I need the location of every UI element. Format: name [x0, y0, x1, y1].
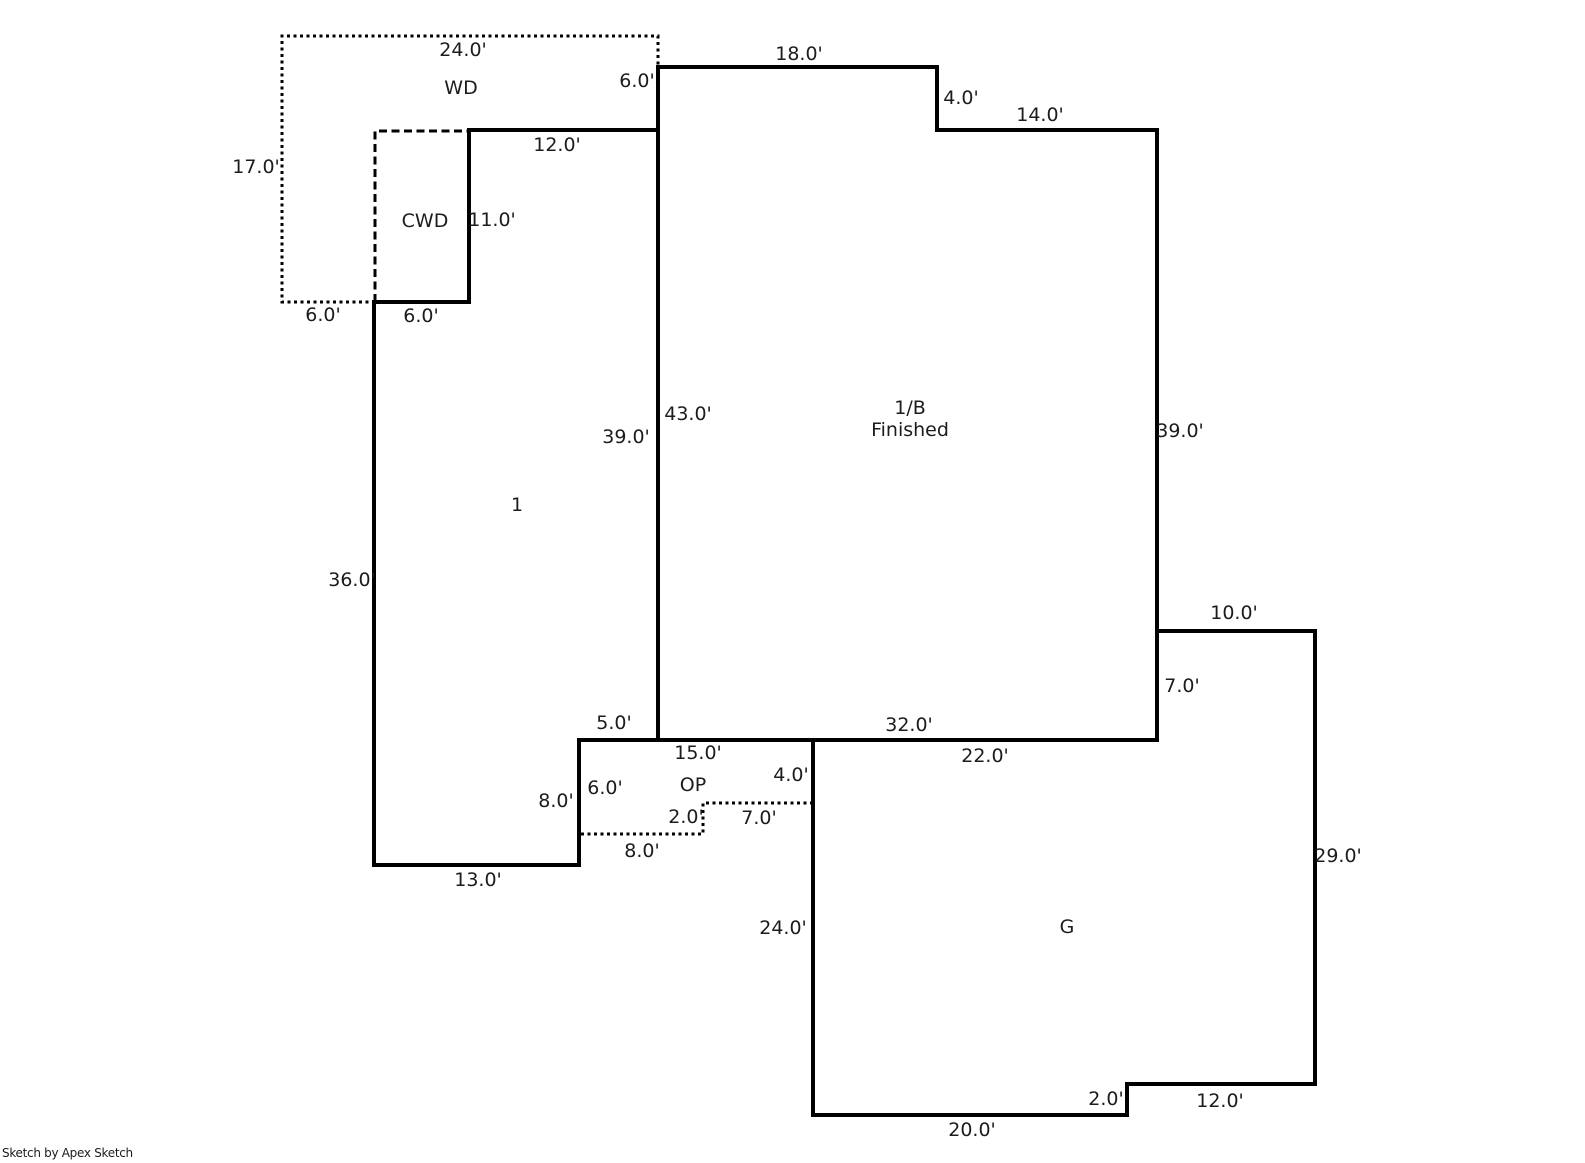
- floor-plan-page: 24.0' WD 17.0' 6.0' 6.0' CWD 11.0' 6.0' …: [0, 0, 1585, 1163]
- dim-op-inner-height: 2.0': [668, 806, 703, 828]
- area-label-op: OP: [680, 774, 706, 796]
- dim-bsmt-top-step: 4.0': [943, 87, 978, 109]
- dim-first-right: 39.0': [602, 426, 650, 448]
- dim-bsmt-right: 39.0': [1156, 420, 1204, 442]
- dim-g-bottom-right: 12.0': [1196, 1090, 1244, 1112]
- dim-wd-left: 17.0': [232, 156, 280, 178]
- dim-g-bottom-step: 2.0': [1088, 1088, 1123, 1110]
- dim-g-shared-wall: 7.0': [1164, 675, 1199, 697]
- garage-outline: [813, 631, 1315, 1115]
- dim-cwd-right: 11.0': [468, 209, 516, 231]
- area-label-1: 1: [511, 494, 523, 516]
- dim-first-left: 36.0': [328, 569, 376, 591]
- dim-bsmt-left: 43.0': [664, 403, 712, 425]
- dim-first-top: 12.0': [533, 134, 581, 156]
- sketch-credit: Sketch by Apex Sketch: [2, 1146, 133, 1160]
- area-label-wd: WD: [444, 77, 477, 99]
- dim-g-attach-bottom: 22.0': [961, 745, 1009, 767]
- dim-op-top: 15.0': [674, 742, 722, 764]
- dim-op-right: 4.0': [773, 764, 808, 786]
- area-label-1b-line2: Finished: [871, 419, 949, 441]
- dim-first-bottom-step: 5.0': [596, 712, 631, 734]
- dim-g-right: 29.0': [1314, 845, 1362, 867]
- dim-bsmt-top-left: 18.0': [775, 43, 823, 65]
- dim-first-lower-right: 8.0': [538, 790, 573, 812]
- area-label-g: G: [1060, 916, 1075, 938]
- dim-bsmt-bottom: 32.0': [885, 714, 933, 736]
- dim-g-left: 24.0': [759, 917, 807, 939]
- area-label-1b-line1: 1/B: [871, 397, 949, 419]
- dim-wd-right: 6.0': [619, 70, 654, 92]
- dim-op-left: 6.0': [587, 777, 622, 799]
- dim-cwd-bottom: 6.0': [403, 305, 438, 327]
- dim-g-top: 10.0': [1210, 602, 1258, 624]
- dim-op-inner-width: 7.0': [741, 807, 776, 829]
- dim-bsmt-top-right: 14.0': [1016, 104, 1064, 126]
- dim-wd-bottom: 6.0': [305, 304, 340, 326]
- area-label-1b: 1/B Finished: [871, 397, 949, 441]
- dim-first-bottom: 13.0': [454, 869, 502, 891]
- dim-g-bottom: 20.0': [948, 1119, 996, 1141]
- dim-op-bottom: 8.0': [624, 840, 659, 862]
- dim-wd-top: 24.0': [439, 39, 487, 61]
- area-label-cwd: CWD: [402, 210, 449, 232]
